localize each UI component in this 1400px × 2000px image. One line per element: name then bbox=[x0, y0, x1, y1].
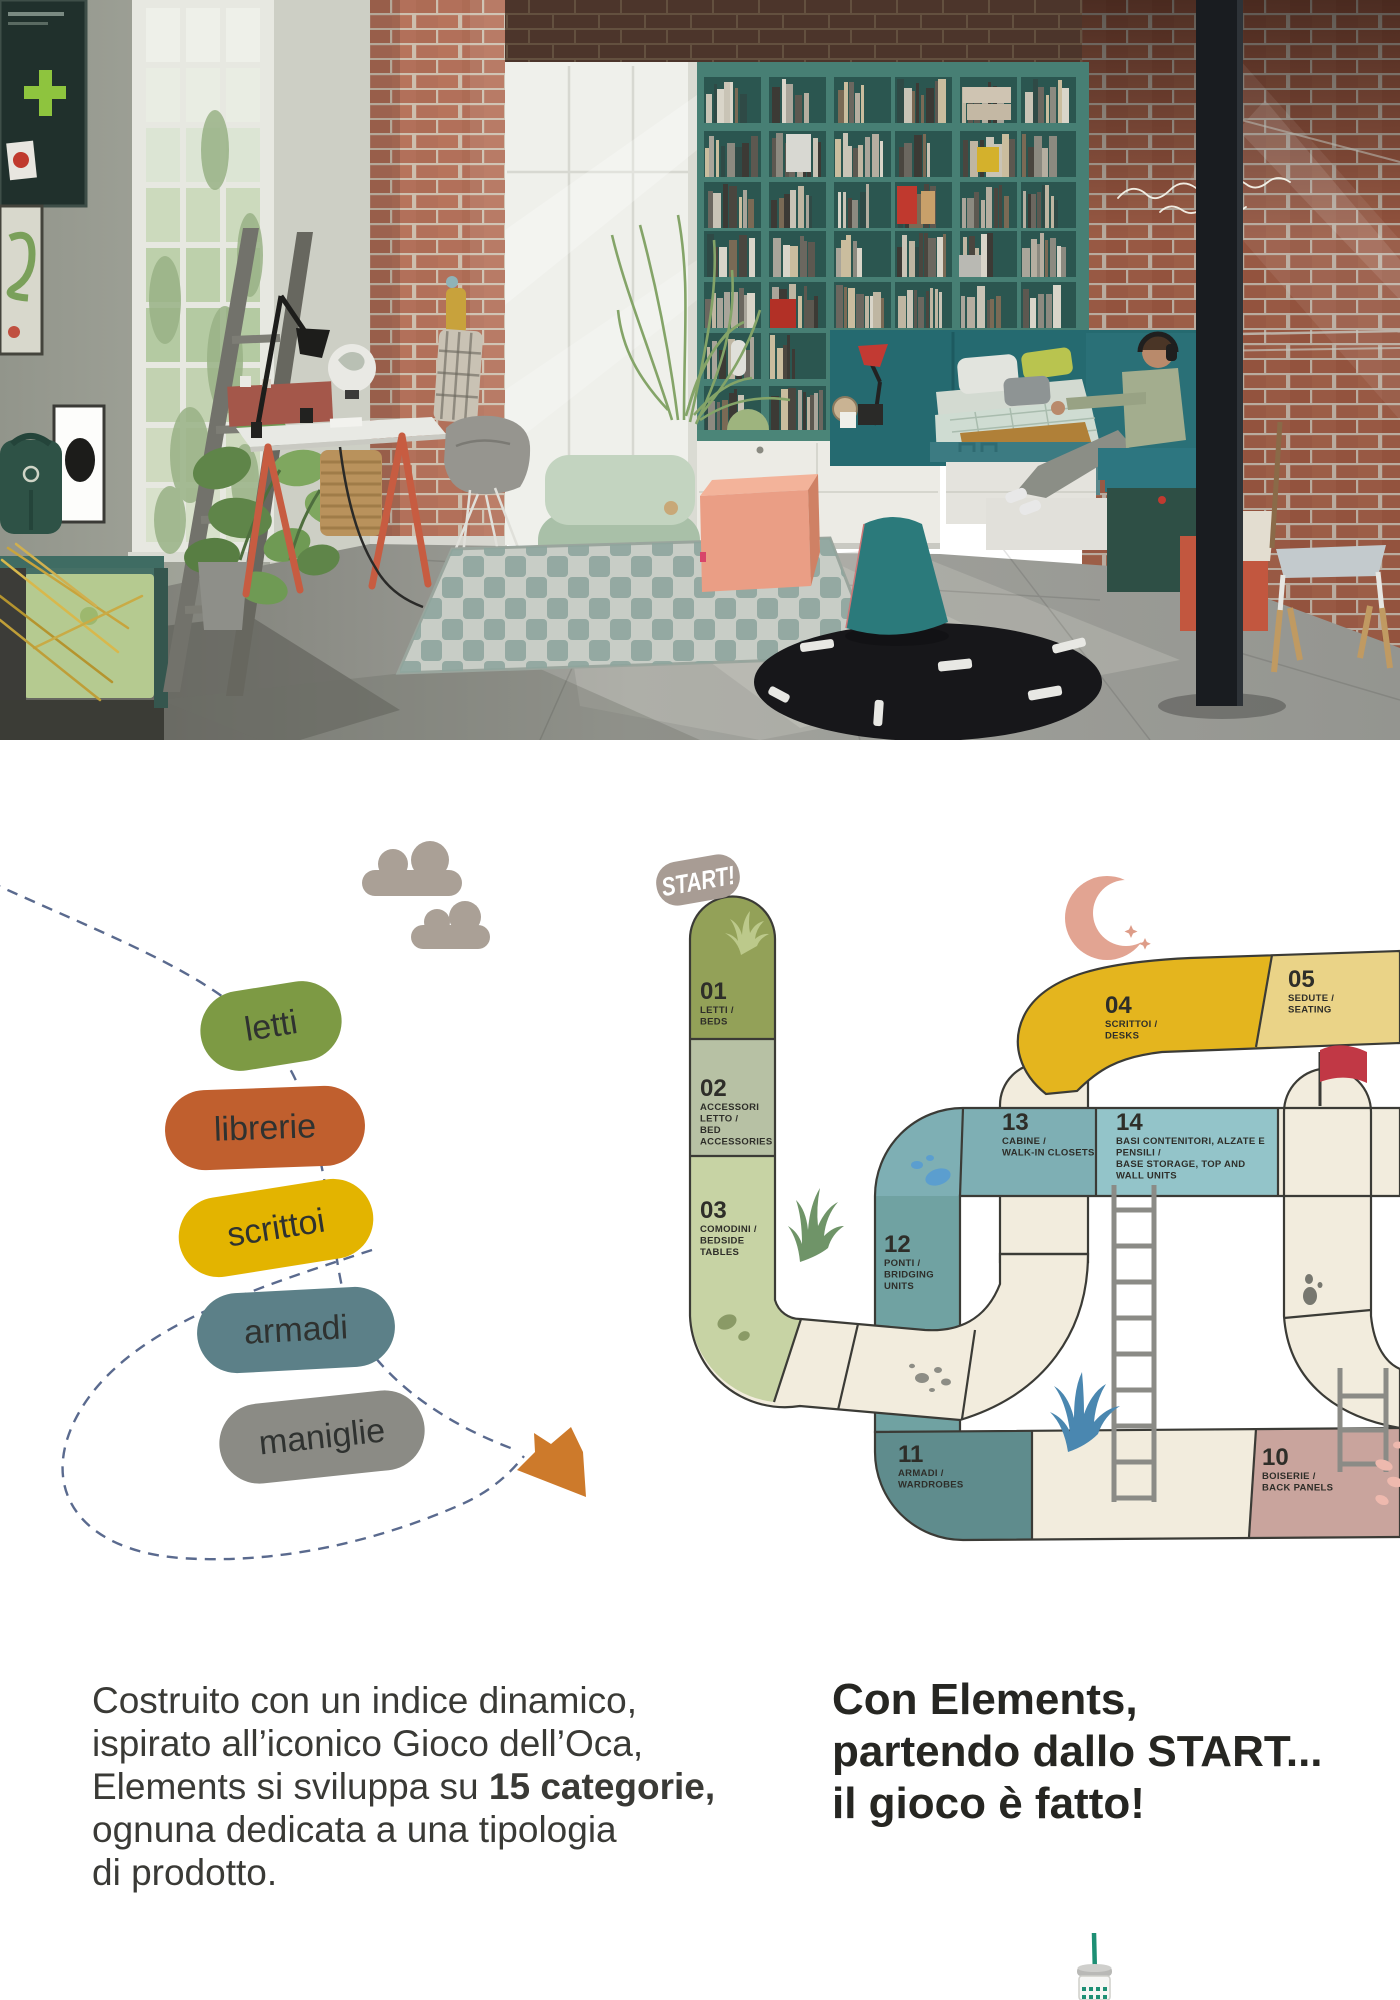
svg-text:UNITS: UNITS bbox=[884, 1281, 914, 1292]
svg-text:BEDSIDE: BEDSIDE bbox=[700, 1236, 744, 1247]
svg-text:PONTI /: PONTI / bbox=[884, 1258, 920, 1269]
svg-text:BASI CONTENITORI, ALZATE E: BASI CONTENITORI, ALZATE E bbox=[1116, 1136, 1265, 1147]
svg-text:BEDS: BEDS bbox=[700, 1017, 728, 1028]
svg-text:04: 04 bbox=[1105, 992, 1132, 1019]
svg-text:SEATING: SEATING bbox=[1288, 1005, 1332, 1016]
svg-text:11: 11 bbox=[898, 1441, 923, 1468]
svg-text:armadi: armadi bbox=[243, 1308, 349, 1351]
svg-text:WALL UNITS: WALL UNITS bbox=[1116, 1171, 1177, 1182]
svg-text:BOISERIE /: BOISERIE / bbox=[1262, 1471, 1316, 1482]
svg-text:10: 10 bbox=[1262, 1444, 1289, 1471]
svg-text:BASE STORAGE, TOP AND: BASE STORAGE, TOP AND bbox=[1116, 1159, 1245, 1170]
svg-text:librerie: librerie bbox=[213, 1107, 316, 1149]
svg-text:PENSILI /: PENSILI / bbox=[1116, 1148, 1161, 1159]
svg-text:14: 14 bbox=[1116, 1109, 1143, 1136]
svg-text:TABLES: TABLES bbox=[700, 1247, 739, 1258]
svg-text:WALK-IN CLOSETS: WALK-IN CLOSETS bbox=[1002, 1148, 1095, 1159]
svg-text:LETTI /: LETTI / bbox=[700, 1005, 734, 1016]
svg-text:13: 13 bbox=[1002, 1109, 1029, 1136]
svg-text:CABINE /: CABINE / bbox=[1002, 1136, 1046, 1147]
svg-text:BRIDGING: BRIDGING bbox=[884, 1270, 934, 1281]
svg-text:BED: BED bbox=[700, 1125, 721, 1136]
svg-text:ARMADI /: ARMADI / bbox=[898, 1468, 944, 1479]
svg-text:02: 02 bbox=[700, 1075, 727, 1102]
svg-text:ACCESSORI: ACCESSORI bbox=[700, 1102, 759, 1113]
svg-text:LETTO /: LETTO / bbox=[700, 1114, 738, 1125]
svg-text:03: 03 bbox=[700, 1197, 727, 1224]
svg-text:BACK PANELS: BACK PANELS bbox=[1262, 1483, 1333, 1494]
svg-text:SEDUTE /: SEDUTE / bbox=[1288, 993, 1334, 1004]
svg-text:05: 05 bbox=[1288, 966, 1315, 993]
svg-text:COMODINI /: COMODINI / bbox=[700, 1224, 757, 1235]
svg-text:DESKS: DESKS bbox=[1105, 1031, 1139, 1042]
svg-text:01: 01 bbox=[700, 978, 727, 1005]
svg-text:12: 12 bbox=[884, 1231, 911, 1258]
svg-text:SCRITTOI /: SCRITTOI / bbox=[1105, 1019, 1157, 1030]
svg-text:WARDROBES: WARDROBES bbox=[898, 1480, 964, 1491]
svg-text:ACCESSORIES: ACCESSORIES bbox=[700, 1137, 772, 1148]
